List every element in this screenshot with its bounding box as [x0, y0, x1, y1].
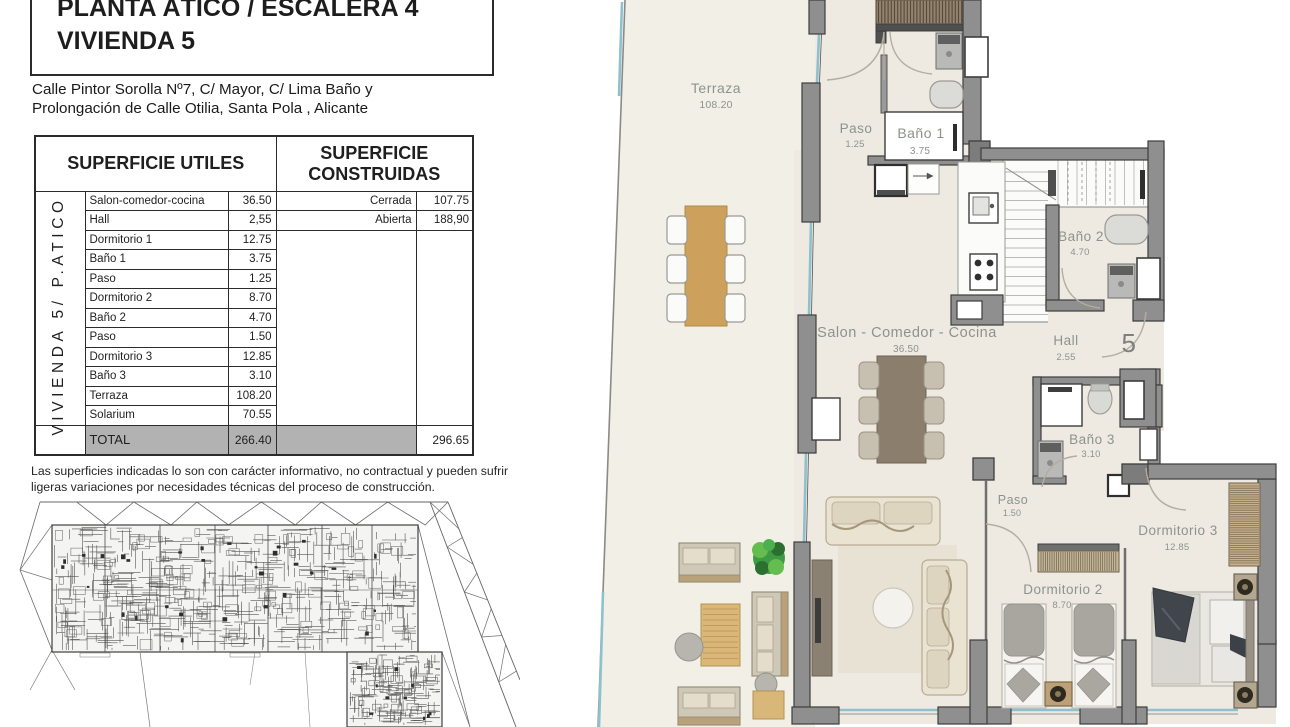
svg-text:2.55: 2.55: [1056, 352, 1075, 363]
svg-text:Hall: Hall: [1053, 333, 1078, 348]
svg-text:3.10: 3.10: [1081, 449, 1100, 460]
svg-text:8.70: 8.70: [1052, 600, 1071, 611]
svg-text:12.85: 12.85: [1165, 542, 1190, 553]
svg-text:Salon - Comedor - Cocina: Salon - Comedor - Cocina: [817, 325, 997, 341]
svg-text:Dormitorio 2: Dormitorio 2: [1023, 582, 1103, 597]
svg-text:Terraza: Terraza: [691, 80, 741, 96]
svg-text:Dormitorio 3: Dormitorio 3: [1138, 523, 1218, 538]
svg-text:Baño 2: Baño 2: [1058, 229, 1104, 244]
svg-text:Paso: Paso: [840, 121, 873, 136]
svg-text:36.50: 36.50: [893, 344, 919, 355]
svg-text:5: 5: [1122, 328, 1137, 358]
svg-text:4.70: 4.70: [1070, 247, 1089, 258]
svg-text:Baño 1: Baño 1: [897, 125, 944, 141]
svg-text:Baño 3: Baño 3: [1069, 432, 1115, 447]
svg-text:3.75: 3.75: [910, 146, 931, 157]
svg-text:1.25: 1.25: [845, 139, 864, 150]
svg-text:Paso: Paso: [998, 493, 1029, 507]
svg-text:1.50: 1.50: [1003, 508, 1021, 518]
svg-text:108.20: 108.20: [699, 99, 732, 111]
